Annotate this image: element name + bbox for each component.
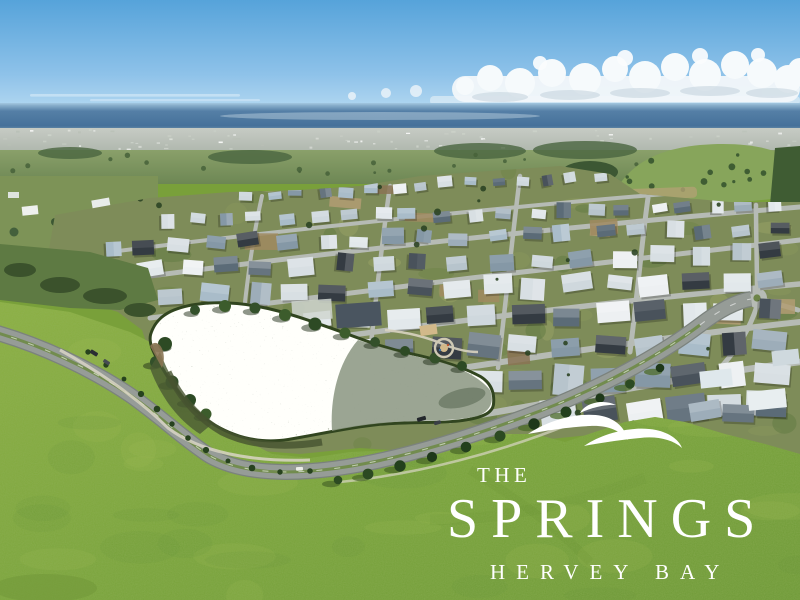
horizon-line (0, 103, 800, 104)
aerial-photo: THE SPRINGS HERVEY BAY (0, 0, 800, 600)
sun-glint (220, 112, 540, 120)
right-edge-trees (770, 146, 800, 210)
playground-sand (440, 344, 448, 352)
aerial-scene (0, 0, 800, 600)
